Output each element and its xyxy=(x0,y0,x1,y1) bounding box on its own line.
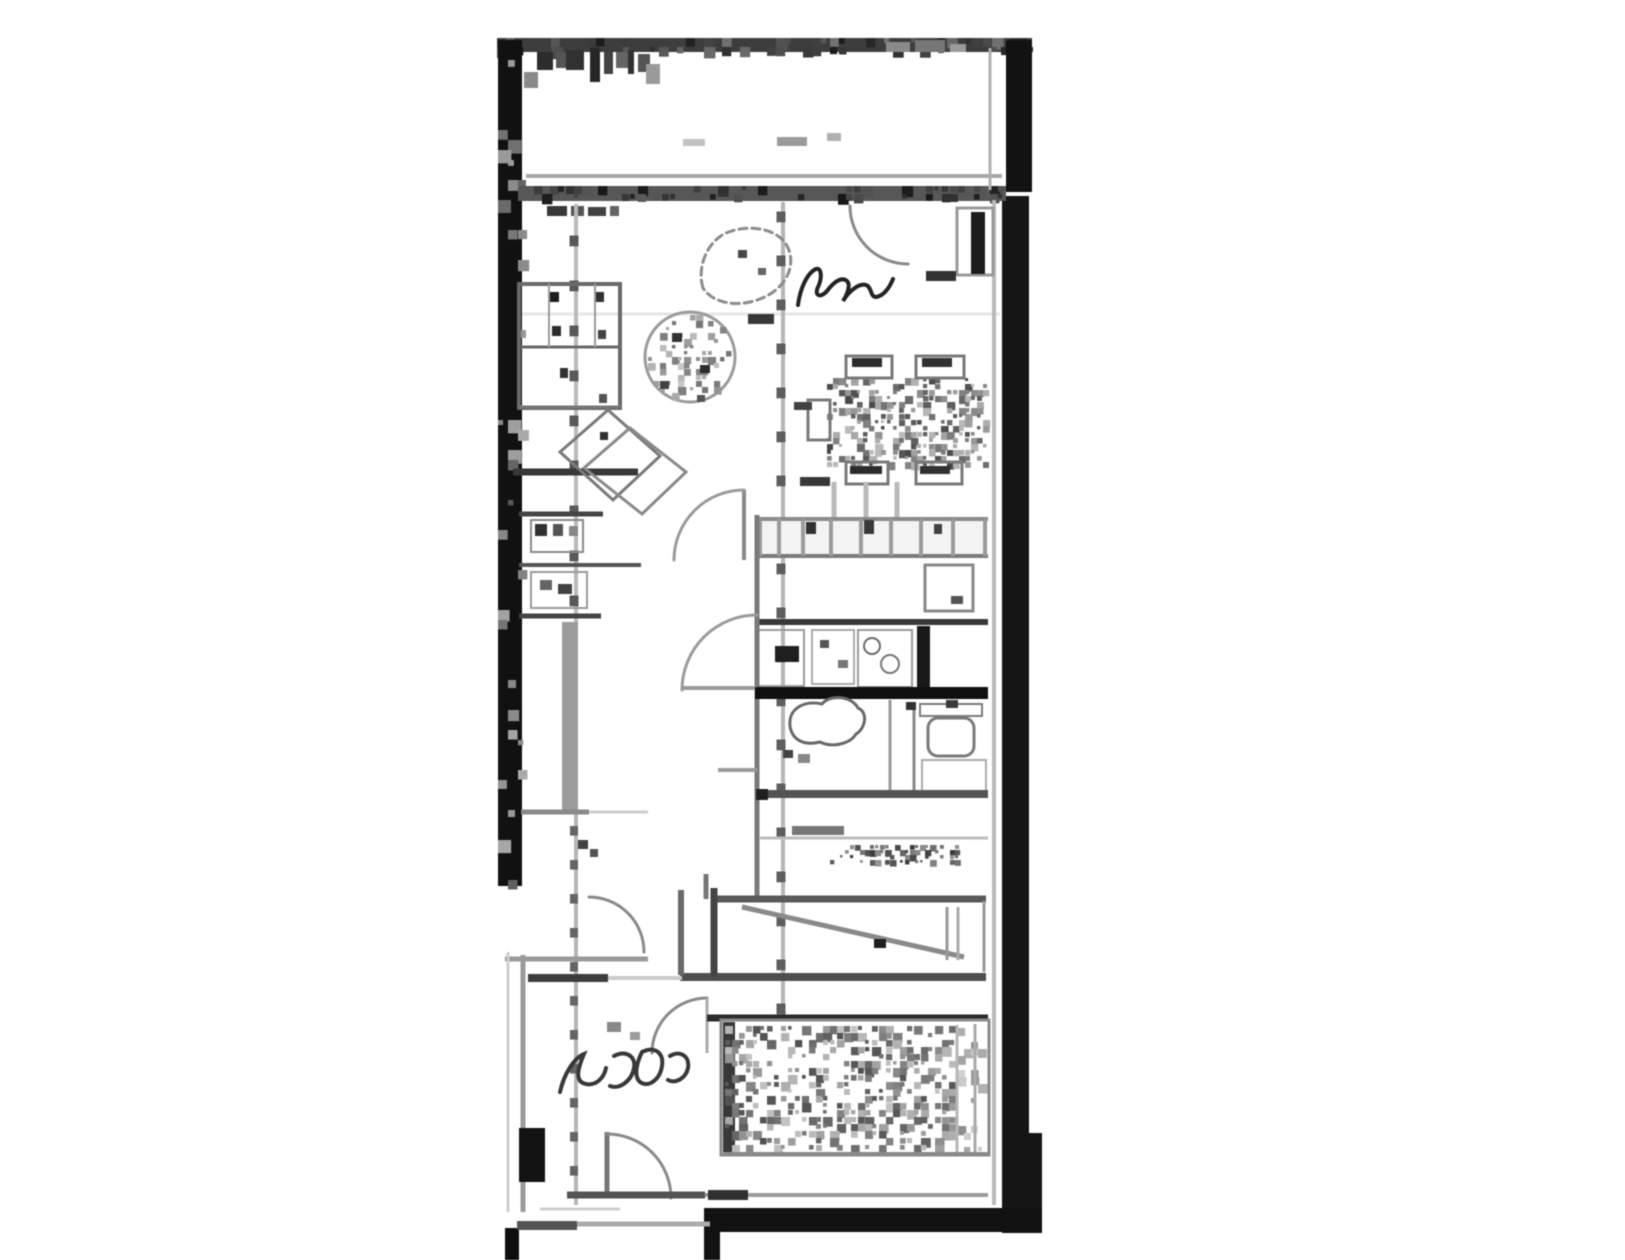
dining-table-shading xyxy=(833,408,837,412)
bottomroom-bottom-dark xyxy=(517,1221,577,1230)
dim-line-left-upper-dots xyxy=(570,596,579,607)
round-table-shading xyxy=(660,345,666,351)
bed-spread-pattern xyxy=(928,1033,932,1037)
bed-spread-pattern xyxy=(746,1096,752,1102)
bed-spread-pattern xyxy=(949,1061,956,1068)
bed-spread-pattern xyxy=(844,1110,849,1115)
dim-line-left-lower-dots xyxy=(570,996,578,1006)
bed-spread-pattern xyxy=(767,1117,774,1124)
sliding-door-leaf xyxy=(742,907,964,957)
dining-table-shading xyxy=(965,402,969,406)
bed-spread-pattern xyxy=(739,1075,746,1082)
bed-spread-pattern xyxy=(774,1110,781,1117)
dining-table-shading xyxy=(929,396,933,400)
room-label-marks xyxy=(890,860,897,867)
bed-spread-pattern xyxy=(872,1026,878,1032)
bed-spread-pattern xyxy=(928,1068,936,1076)
bed-spread-pattern xyxy=(865,1096,873,1104)
balcony-wall-texture xyxy=(934,186,938,190)
round-table-shading xyxy=(678,381,684,387)
center-dim-line-dots xyxy=(777,872,786,883)
living-room-label-marks xyxy=(547,206,567,216)
room-label-marks xyxy=(860,860,863,863)
dining-table-shading xyxy=(971,396,975,400)
stamp-marks xyxy=(604,52,613,74)
bed-spread-pattern xyxy=(746,1026,752,1032)
bed-spread-pattern xyxy=(802,1054,806,1058)
left-wall-texture xyxy=(498,840,511,853)
fold-mark xyxy=(748,314,774,324)
dining-table-shading xyxy=(977,438,983,444)
kitchen-sink-drain xyxy=(951,596,963,604)
top-wall-texture xyxy=(839,47,847,55)
bed-spread-pattern xyxy=(746,1061,752,1067)
bed-spread-pattern xyxy=(753,1026,761,1034)
toilet-bowl xyxy=(928,718,974,756)
bed-spread-pattern xyxy=(732,1047,739,1054)
dining-table-shading xyxy=(857,390,860,393)
door-kitchen-arc xyxy=(682,615,757,690)
round-table-shading xyxy=(726,351,732,357)
bed-spread-pattern xyxy=(851,1124,858,1131)
top-wall-texture xyxy=(785,38,791,44)
dining-table-shading xyxy=(959,450,964,455)
dining-table-shading xyxy=(929,432,935,438)
center-dim-line-dots xyxy=(777,344,786,355)
top-wall-texture xyxy=(596,38,604,46)
dining-table-shading xyxy=(941,444,947,450)
bed-spread-pattern xyxy=(872,1124,876,1128)
dining-set-marks xyxy=(850,466,882,474)
stove-divider xyxy=(917,626,930,688)
stamp-marks xyxy=(616,52,628,68)
entry-column xyxy=(971,212,985,274)
dining-table-shading xyxy=(893,450,898,455)
bed-spread-pattern xyxy=(893,1061,897,1065)
bed-spread-pattern xyxy=(760,1138,767,1145)
balcony-wall-texture xyxy=(846,186,852,192)
bed-spread-pattern xyxy=(893,1089,901,1097)
dining-table-shading xyxy=(941,396,947,402)
bed-spread-pattern xyxy=(858,1124,866,1132)
bed-spread-pattern xyxy=(837,1082,843,1088)
balcony-wall-texture xyxy=(574,186,582,194)
wall-unit-handles xyxy=(599,394,607,403)
room-label-marks xyxy=(950,860,955,865)
room-label-marks xyxy=(875,845,878,848)
dining-table-shading xyxy=(869,450,874,455)
room-label-marks xyxy=(860,850,865,855)
bed-spread-pattern xyxy=(921,1096,927,1102)
dining-table-shading xyxy=(923,432,927,436)
dining-table-shading xyxy=(917,420,922,425)
bed-spread-pattern xyxy=(746,1040,754,1048)
closet-fixture-a-marks xyxy=(553,524,563,536)
bed-spread-pattern xyxy=(914,1117,922,1125)
room-label-marks xyxy=(925,845,928,848)
stamp-marks xyxy=(524,72,538,88)
round-table-shading xyxy=(648,363,656,371)
kitchen-counter-marks xyxy=(806,522,816,534)
top-wall-texture xyxy=(623,38,632,47)
dim-line-left-lower-dots xyxy=(570,1132,578,1142)
bedroom-small-marks xyxy=(630,1032,640,1040)
dining-table-shading xyxy=(953,438,958,443)
top-wall-texture xyxy=(830,38,839,47)
bed-spread-pattern xyxy=(844,1075,848,1079)
dining-table-shading xyxy=(899,438,904,443)
room-label-marks xyxy=(900,860,903,863)
dining-table-shading xyxy=(947,408,952,413)
bed-spread-pattern xyxy=(872,1131,876,1135)
bed-spread-pattern xyxy=(774,1138,780,1144)
bed-spread-pattern xyxy=(851,1026,857,1032)
bed-spread-pattern xyxy=(879,1033,887,1041)
bed-spread-pattern xyxy=(802,1103,811,1112)
closet-fixture-b-marks xyxy=(540,580,552,590)
dining-table-shading xyxy=(983,444,986,447)
bed-spread-pattern xyxy=(774,1082,779,1087)
left-wall-texture xyxy=(508,60,515,67)
round-table-shading xyxy=(696,321,703,328)
balcony-wall-texture xyxy=(854,186,861,193)
room-label-marks xyxy=(845,850,849,854)
dining-table-shading xyxy=(965,390,969,394)
bed-spread-pattern xyxy=(844,1117,851,1124)
bed-spread-pattern xyxy=(942,1047,952,1057)
dining-table-shading xyxy=(839,390,845,396)
dining-table-shading xyxy=(965,450,970,455)
bed-spread-pattern xyxy=(746,1110,753,1117)
bed-spread-pattern xyxy=(830,1047,836,1053)
dining-table-shading xyxy=(941,420,945,424)
bed-spread-pattern xyxy=(879,1131,887,1139)
left-wall-texture xyxy=(498,200,511,213)
sliding-door-mark xyxy=(874,939,886,948)
balcony-wall-texture xyxy=(950,194,958,202)
dining-table-shading xyxy=(959,426,964,431)
dining-table-shading xyxy=(881,420,884,423)
dining-table-shading xyxy=(887,408,891,412)
balcony-wall-texture xyxy=(654,194,660,200)
dining-table-shading xyxy=(971,384,974,387)
dining-table-shading xyxy=(833,432,840,439)
top-wall-texture xyxy=(722,38,732,48)
bed-spread-pattern xyxy=(788,1054,792,1058)
left-wall-texture xyxy=(498,610,510,622)
top-wall-texture xyxy=(965,38,971,44)
wall-pier xyxy=(519,1128,545,1182)
dining-table-shading xyxy=(845,456,850,461)
bed-spread-pattern xyxy=(788,1068,792,1072)
bed-spread-pattern xyxy=(928,1075,934,1081)
kitchen-sink xyxy=(925,565,973,611)
top-wall-texture xyxy=(911,38,916,43)
dining-table-shading xyxy=(965,420,972,427)
bed-spread-pattern xyxy=(802,1026,811,1035)
dining-table-shading xyxy=(857,402,863,408)
balcony-wall-texture xyxy=(574,194,578,198)
bed-spread-pattern xyxy=(788,1026,792,1030)
bed-spread-pattern xyxy=(837,1110,845,1118)
sketch-chairs-marks xyxy=(738,250,747,258)
bed-spread-pattern xyxy=(809,1082,815,1088)
bed-spread-pattern xyxy=(823,1096,827,1100)
dining-table-shading xyxy=(851,408,857,414)
dim-line-left-upper-dots xyxy=(570,371,579,382)
dining-table-shading xyxy=(899,432,905,438)
bed-spread-pattern xyxy=(781,1096,786,1101)
entry-door-arc xyxy=(850,206,908,264)
bed-spread-pattern xyxy=(907,1047,914,1054)
left-wall-texture xyxy=(508,710,519,721)
wall-unit-handles xyxy=(552,326,561,336)
bed-spread-pattern xyxy=(837,1033,843,1039)
dining-table-shading xyxy=(827,444,833,450)
bed-spread-pattern xyxy=(746,1054,752,1060)
bed-spread-pattern xyxy=(900,1131,904,1135)
bed-spread-pattern xyxy=(823,1040,828,1045)
dining-table-shading xyxy=(905,414,910,419)
bed-spread-pattern xyxy=(795,1040,802,1047)
room-label-marks xyxy=(920,860,923,863)
dining-table-shading xyxy=(959,414,962,417)
bed-spread-pattern xyxy=(851,1047,859,1055)
bed-spread-pattern xyxy=(893,1110,900,1117)
dining-table-shading xyxy=(983,426,990,433)
bed-spread-pattern xyxy=(739,1110,745,1116)
bed-spread-pattern xyxy=(879,1054,884,1059)
round-table-shading xyxy=(660,369,666,375)
door-corridor-arc xyxy=(589,897,644,952)
room-label-marks xyxy=(895,845,901,851)
bed-spread-pattern xyxy=(886,1033,892,1039)
living-room-label-marks xyxy=(588,207,606,216)
bed-spread-pattern xyxy=(732,1075,740,1083)
dining-table-shading xyxy=(887,414,893,420)
round-table-shading xyxy=(690,333,697,340)
bed-spread-pattern xyxy=(844,1026,850,1032)
round-table-marks xyxy=(660,381,669,389)
dining-table-shading xyxy=(905,396,913,404)
dining-table-shading xyxy=(977,408,983,414)
balcony-wall-texture xyxy=(662,194,669,201)
bed-spread-pattern xyxy=(725,1089,732,1096)
left-wall-texture xyxy=(518,740,523,745)
dining-set-marks xyxy=(794,402,812,410)
floorplan-drawing xyxy=(0,0,1625,1260)
center-dim-line-dots xyxy=(777,564,786,575)
bottom-wall-stub xyxy=(704,1208,720,1260)
left-wall-texture xyxy=(518,260,529,271)
dining-table-shading xyxy=(839,444,842,447)
bed-spread-pattern xyxy=(781,1117,790,1126)
bed-spread-pattern xyxy=(879,1110,886,1117)
bed-spread-pattern xyxy=(767,1124,773,1130)
bed-spread-pattern xyxy=(865,1075,872,1082)
living-room-label-marks xyxy=(610,206,619,216)
dining-table-shading xyxy=(953,414,957,418)
bed-spread-pattern xyxy=(935,1082,941,1088)
bed-spread-pattern xyxy=(753,1040,757,1044)
dining-table-shading xyxy=(953,450,959,456)
bed-spread-pattern xyxy=(865,1145,869,1149)
bed-spread-pattern xyxy=(802,1117,806,1121)
top-wall-texture xyxy=(587,38,597,48)
dining-table-shading xyxy=(923,456,926,459)
balcony-wall-texture xyxy=(854,194,863,203)
dining-table-shading xyxy=(917,402,923,408)
bed-spread-pattern xyxy=(858,1103,865,1110)
top-wall-texture xyxy=(704,47,715,58)
left-wall-texture xyxy=(518,770,527,779)
bed-spread-pattern xyxy=(865,1103,870,1108)
round-table-shading xyxy=(714,387,722,395)
center-dim-line-dots xyxy=(777,476,786,487)
dining-table-shading xyxy=(833,462,838,467)
top-wall-texture xyxy=(776,47,785,56)
bed-spread-pattern xyxy=(921,1061,925,1065)
bed-spread-pattern xyxy=(886,1068,891,1073)
bed-spread-pattern xyxy=(921,1054,928,1061)
bed-spread-pattern xyxy=(935,1068,941,1074)
round-table-shading xyxy=(690,315,696,321)
bed-spread-pattern xyxy=(865,1061,873,1069)
bed-spread-pattern xyxy=(767,1026,773,1032)
door-bedroom-arc xyxy=(652,998,707,1053)
dining-table-shading xyxy=(965,462,971,468)
bed-spread-pattern xyxy=(858,1110,866,1118)
balcony-wall-texture xyxy=(902,194,907,199)
round-table-marks xyxy=(672,333,682,342)
bed-spread-pattern xyxy=(900,1068,907,1075)
dining-table-shading xyxy=(911,444,916,449)
wall-unit-handles xyxy=(550,292,559,302)
bed-spread-pattern xyxy=(921,1110,929,1118)
door-living-corridor-arc xyxy=(674,490,744,560)
bed-spread-pattern xyxy=(865,1047,869,1051)
balcony-right-wall xyxy=(1006,40,1032,192)
bed-spread-pattern xyxy=(865,1040,869,1044)
bed-spread-pattern xyxy=(781,1026,786,1031)
closet-fixture-a-marks xyxy=(535,524,547,536)
bed-spread-pattern xyxy=(851,1068,855,1072)
balcony-wall-texture xyxy=(878,194,883,199)
round-table-shading xyxy=(660,333,668,341)
top-wall-texture xyxy=(650,47,655,52)
bed-spread-pattern xyxy=(809,1068,817,1076)
dining-table-shading xyxy=(971,390,978,397)
room-label-marks xyxy=(890,855,894,859)
kitchen-appliance-b-marks xyxy=(838,660,848,668)
bed-spread-pattern xyxy=(900,1103,906,1109)
room-label-marks xyxy=(940,855,944,859)
balcony-wall-texture xyxy=(638,194,646,202)
left-wall-texture xyxy=(518,430,529,441)
door-bottomroom-arc xyxy=(607,1134,671,1198)
center-dim-line-dots xyxy=(777,256,786,267)
bed-spread-pattern xyxy=(942,1124,950,1132)
top-wall-texture xyxy=(659,47,669,57)
balcony-wall-texture xyxy=(622,194,629,201)
bed-spread-pattern xyxy=(942,1075,947,1080)
bed-spread-pattern xyxy=(865,1124,872,1131)
bed-spread-pattern xyxy=(725,1117,733,1125)
bed-spread-pattern xyxy=(823,1103,827,1107)
dining-table-shading xyxy=(893,456,897,460)
bed-spread-pattern xyxy=(935,1054,943,1062)
bed-spread-pattern xyxy=(788,1103,794,1109)
dining-table-shading xyxy=(857,408,861,412)
corridor-wall-left xyxy=(562,622,578,810)
kitchen-stove xyxy=(858,630,912,687)
left-bottom-stub xyxy=(505,1228,519,1260)
dining-table-shading xyxy=(923,396,928,401)
dining-set-marks xyxy=(800,477,830,486)
closet-fixture-a-marks xyxy=(569,526,578,536)
bed-spread-pattern xyxy=(725,1040,730,1045)
dining-table-shading xyxy=(947,390,951,394)
bed-spread-pattern xyxy=(732,1089,738,1095)
bed-side-pattern xyxy=(978,1147,982,1151)
balcony-wall-texture xyxy=(958,186,965,193)
left-wall-texture xyxy=(498,780,507,789)
bed-spread-pattern xyxy=(886,1040,893,1047)
dining-set-marks xyxy=(920,466,950,474)
dining-table-shading xyxy=(827,456,832,461)
bed-spread-pattern xyxy=(907,1054,914,1061)
balcony-wall-texture xyxy=(798,194,804,200)
stamp-marks xyxy=(556,52,566,68)
bed-spread-pattern xyxy=(900,1145,905,1150)
bed-spread-pattern xyxy=(914,1068,920,1074)
bed-spread-pattern xyxy=(725,1082,729,1086)
bed-spread-pattern xyxy=(732,1103,739,1110)
right-exterior-wall xyxy=(1002,196,1029,1210)
top-wall-texture xyxy=(992,47,997,52)
dining-table-shading xyxy=(845,384,848,387)
room-label-marks xyxy=(955,845,959,849)
bed-spread-pattern xyxy=(753,1075,757,1079)
dining-table-shading xyxy=(851,414,856,419)
bed-spread-pattern xyxy=(907,1061,914,1068)
round-table-shading xyxy=(654,381,659,386)
dining-table-shading xyxy=(923,444,926,447)
bed-spread-pattern xyxy=(823,1054,829,1060)
round-table-shading xyxy=(672,321,676,325)
left-wall-texture xyxy=(508,180,519,191)
bed-spread-pattern xyxy=(872,1068,878,1074)
room-label-marks xyxy=(870,860,876,866)
bed-spread-pattern xyxy=(739,1103,744,1108)
dining-table-shading xyxy=(863,438,867,442)
balcony-wall-texture xyxy=(534,186,542,194)
top-wall-texture xyxy=(803,47,814,58)
bed-spread-pattern xyxy=(879,1145,887,1153)
balcony-wall-texture xyxy=(710,194,716,200)
bed-spread-pattern xyxy=(767,1096,776,1105)
bed-spread-pattern xyxy=(914,1061,918,1065)
round-table-shading xyxy=(702,357,708,363)
balcony-wall-texture xyxy=(926,186,933,193)
top-wall-texture xyxy=(551,38,560,47)
dining-table-shading xyxy=(965,456,970,461)
dining-table-shading xyxy=(827,462,832,467)
stamp-marks xyxy=(566,50,584,70)
bed-spread-pattern xyxy=(914,1054,920,1060)
bed-spread-pattern xyxy=(851,1033,859,1041)
dining-set-marks xyxy=(852,358,882,367)
